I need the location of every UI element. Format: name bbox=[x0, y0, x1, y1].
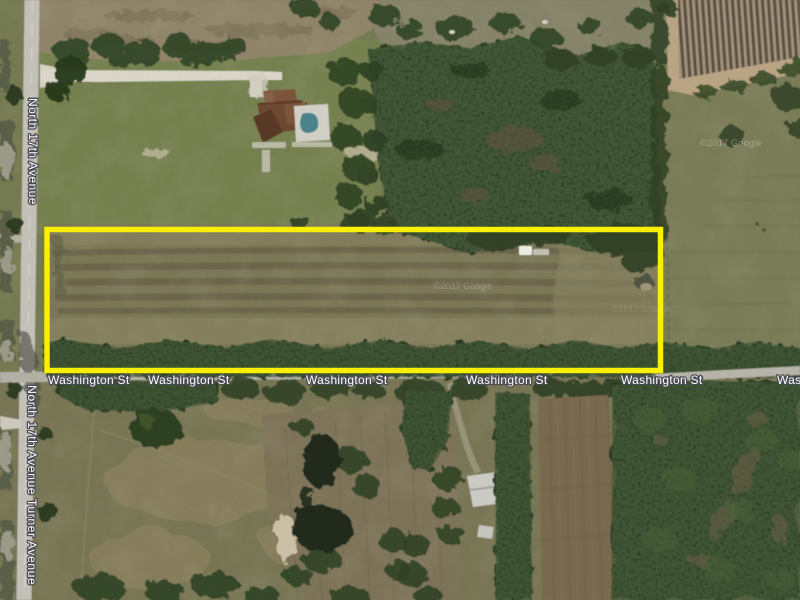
svg-text:Washington St: Washington St bbox=[48, 373, 130, 387]
svg-text:©2017 Google: ©2017 Google bbox=[434, 281, 492, 291]
svg-text:Washington St: Washington St bbox=[148, 373, 230, 387]
svg-text:North 17th Avenue: North 17th Avenue bbox=[26, 98, 40, 205]
svg-text:©2017 Google: ©2017 Google bbox=[700, 138, 761, 149]
svg-text:Washington St: Washington St bbox=[466, 373, 548, 387]
svg-text:Washington St: Washington St bbox=[306, 373, 388, 387]
svg-text:North 17th Avenue Turner Avenu: North 17th Avenue Turner Avenue bbox=[25, 385, 39, 585]
svg-text:Washington St: Washington St bbox=[777, 373, 800, 387]
svg-text:Washington St: Washington St bbox=[621, 373, 703, 387]
svg-text:©2017 Google: ©2017 Google bbox=[612, 304, 670, 314]
